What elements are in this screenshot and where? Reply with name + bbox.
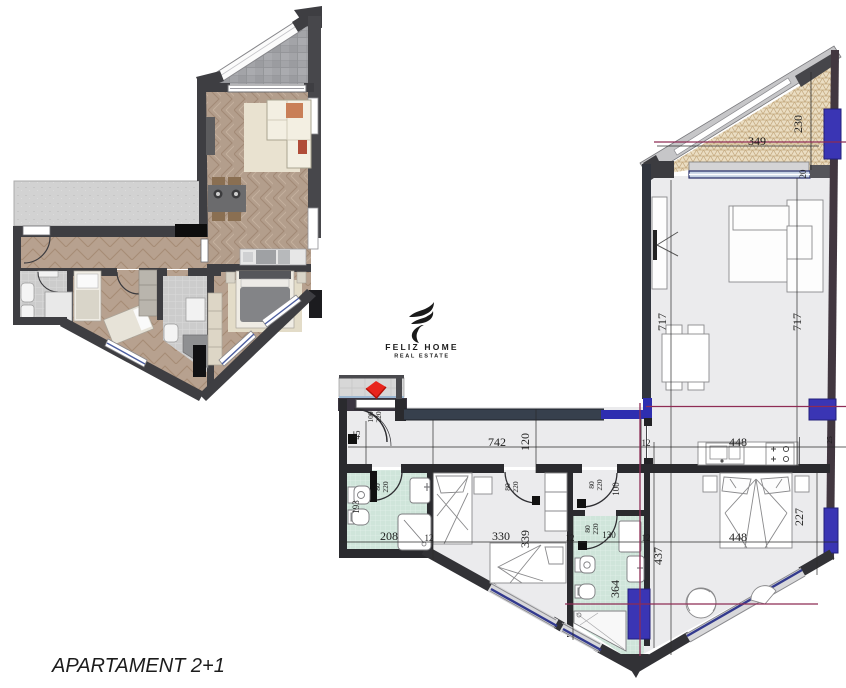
svg-text:REAL ESTATE: REAL ESTATE [394,354,450,360]
svg-text:12: 12 [425,533,434,543]
svg-text:208: 208 [380,529,398,543]
svg-text:220: 220 [381,481,390,493]
svg-text:220: 220 [511,481,520,493]
svg-text:220: 220 [595,479,604,491]
svg-text:45: 45 [352,430,362,440]
svg-text:717: 717 [655,313,669,331]
svg-text:717: 717 [790,313,804,331]
svg-text:193: 193 [351,500,361,514]
svg-text:25: 25 [825,436,834,444]
svg-text:227: 227 [792,508,806,526]
svg-text:220: 220 [374,411,383,423]
svg-text:FELIZ HOME: FELIZ HOME [385,342,458,352]
svg-text:12: 12 [642,438,651,448]
svg-text:100: 100 [611,482,621,496]
svg-text:220: 220 [591,523,600,535]
svg-text:364: 364 [608,580,622,598]
svg-text:437: 437 [651,547,665,565]
svg-text:12: 12 [642,533,651,543]
svg-text:339: 339 [518,530,532,548]
svg-text:330: 330 [492,529,510,543]
svg-text:12: 12 [566,533,575,543]
svg-text:742: 742 [488,435,506,449]
svg-text:448: 448 [729,530,747,544]
svg-text:120: 120 [518,433,532,451]
svg-text:349: 349 [748,134,766,148]
svg-text:20: 20 [798,169,808,179]
svg-text:130: 130 [602,530,616,540]
svg-text:APARTAMENT 2+1: APARTAMENT 2+1 [51,655,225,677]
svg-text:448: 448 [729,435,747,449]
svg-text:230: 230 [791,115,805,133]
